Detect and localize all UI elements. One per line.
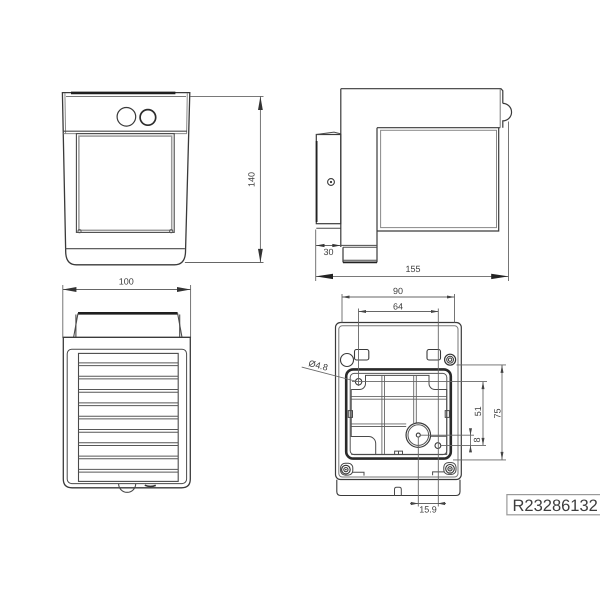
svg-text:100: 100	[119, 277, 134, 287]
svg-text:90: 90	[393, 286, 403, 296]
svg-text:64: 64	[393, 302, 403, 312]
svg-text:15.9: 15.9	[419, 504, 437, 514]
svg-text:155: 155	[405, 264, 420, 274]
svg-text:8: 8	[472, 437, 482, 442]
svg-text:140: 140	[247, 172, 257, 187]
svg-text:51: 51	[473, 406, 483, 416]
svg-text:75: 75	[492, 408, 502, 418]
svg-text:30: 30	[323, 247, 333, 257]
svg-text:Ø4.8: Ø4.8	[308, 358, 329, 373]
svg-text:R23286132: R23286132	[513, 497, 598, 515]
